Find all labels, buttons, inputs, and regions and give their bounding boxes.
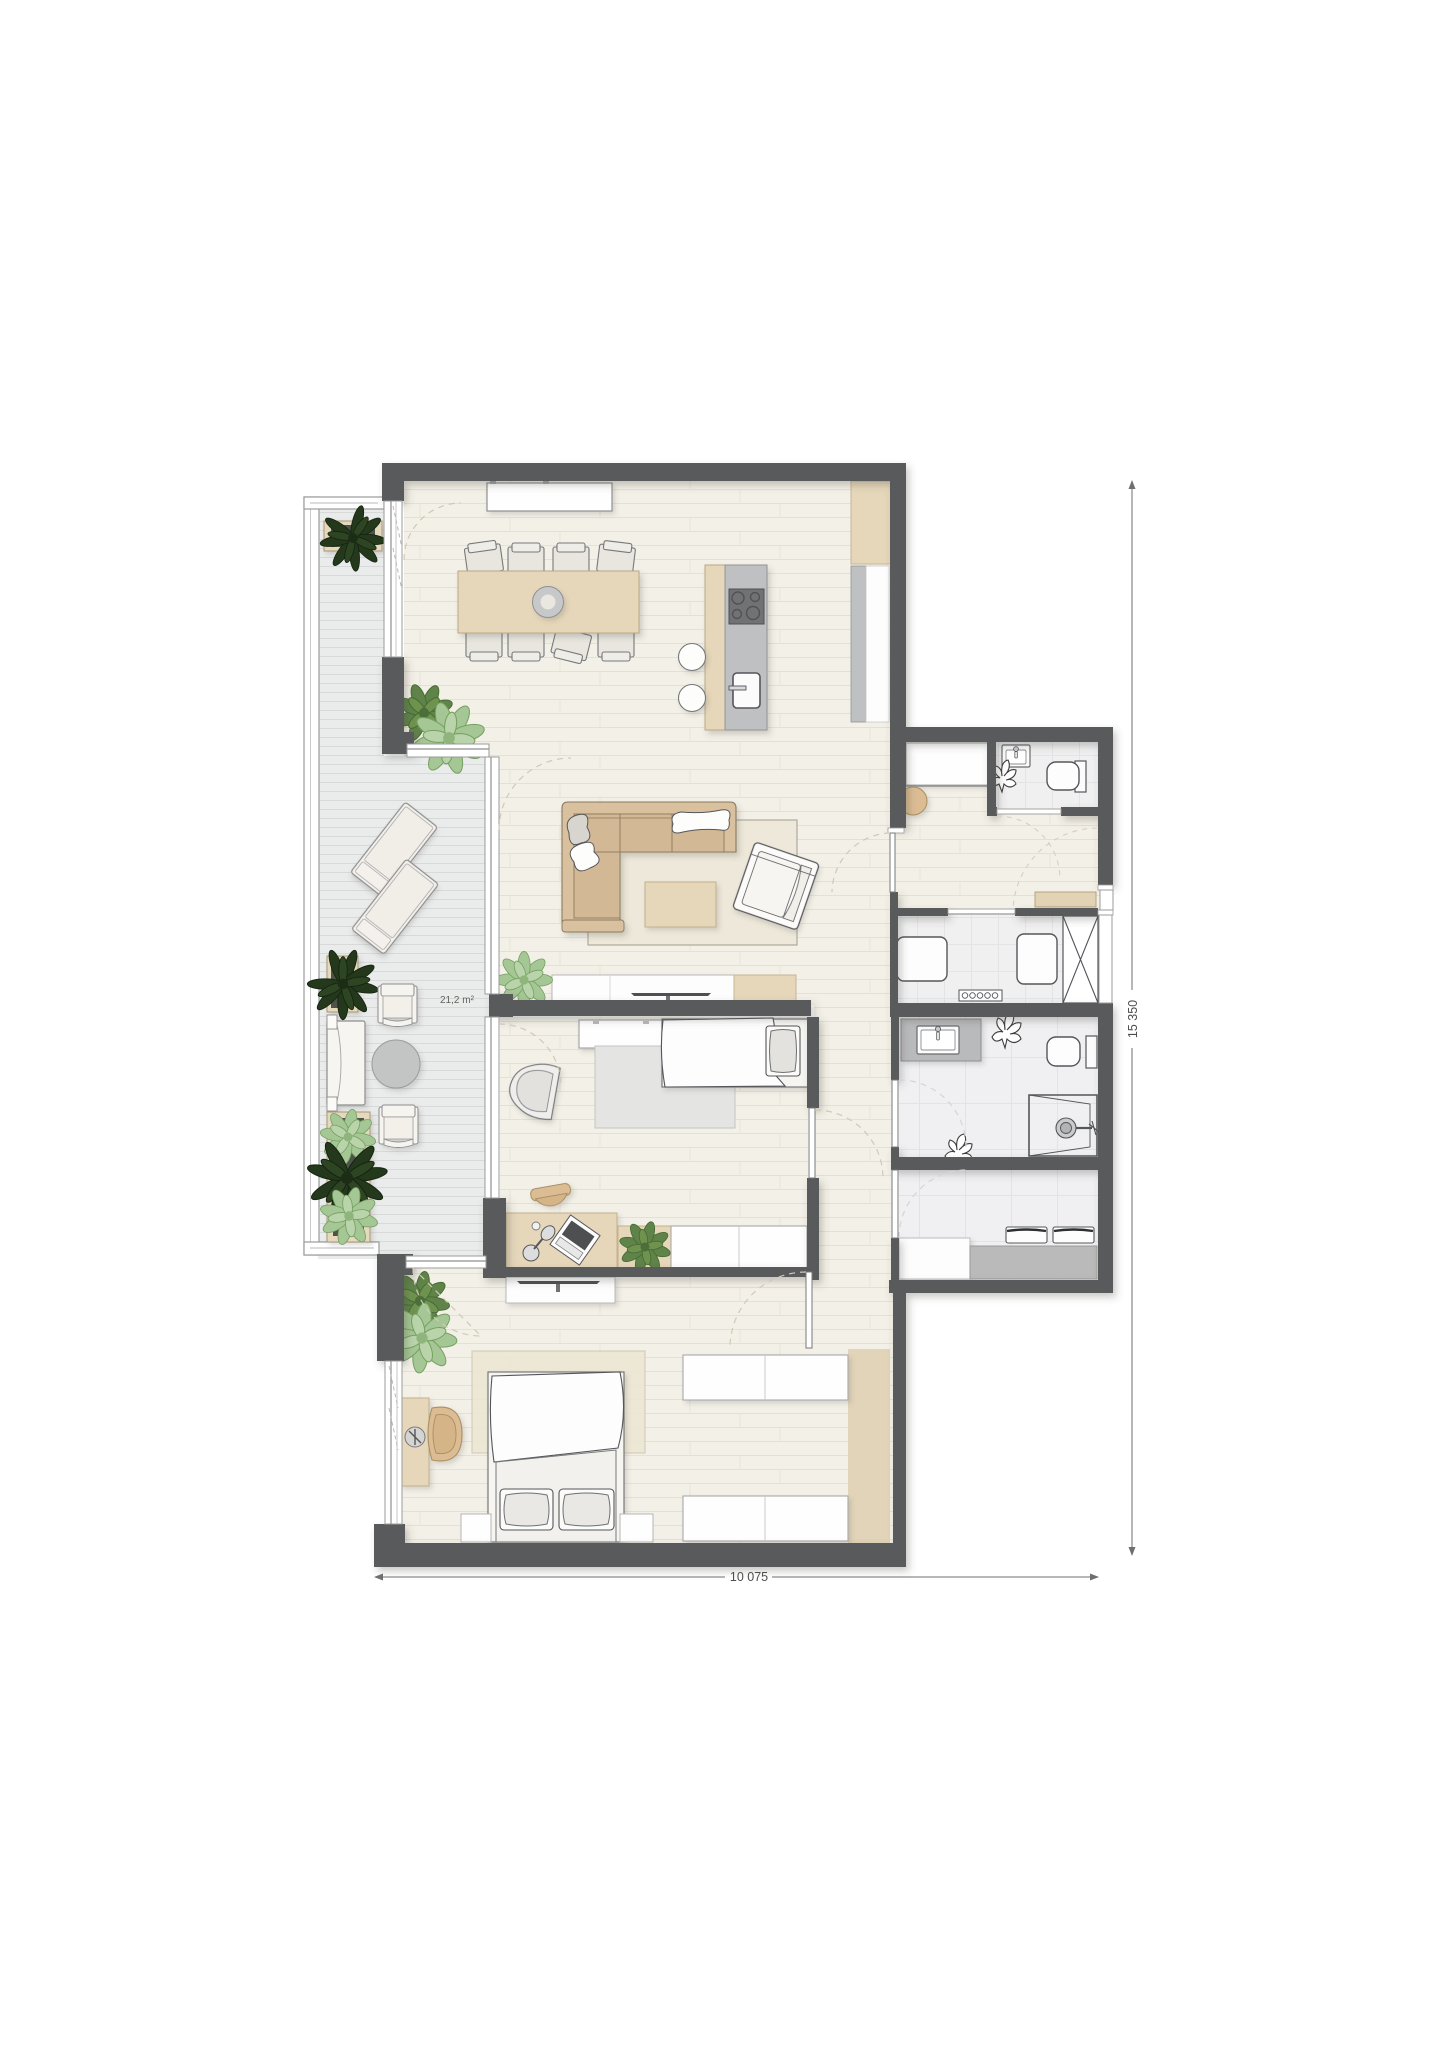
svg-text:21,2 m²: 21,2 m² bbox=[440, 995, 475, 1006]
svg-text:10 075: 10 075 bbox=[730, 1570, 768, 1584]
svg-text:15 350: 15 350 bbox=[1126, 1000, 1140, 1038]
